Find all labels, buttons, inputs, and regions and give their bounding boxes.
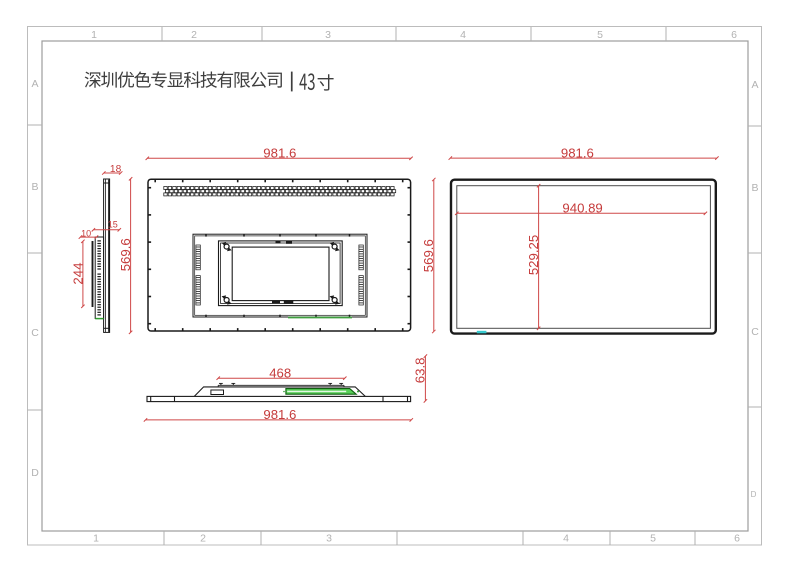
svg-text:3: 3 bbox=[325, 29, 331, 41]
svg-text:2: 2 bbox=[191, 29, 197, 41]
svg-text:5: 5 bbox=[650, 533, 656, 545]
svg-text:4: 4 bbox=[460, 29, 466, 41]
svg-text:468: 468 bbox=[269, 365, 291, 380]
svg-text:C: C bbox=[31, 327, 39, 339]
svg-text:D: D bbox=[31, 467, 39, 479]
svg-text:B: B bbox=[751, 182, 758, 194]
svg-text:569.6: 569.6 bbox=[421, 239, 436, 272]
svg-text:1: 1 bbox=[93, 533, 99, 545]
svg-text:18: 18 bbox=[110, 164, 122, 175]
svg-text:5: 5 bbox=[597, 29, 603, 41]
svg-text:981.6: 981.6 bbox=[263, 145, 296, 160]
svg-text:981.6: 981.6 bbox=[263, 407, 296, 422]
svg-text:244: 244 bbox=[70, 263, 85, 285]
svg-text:10: 10 bbox=[81, 229, 91, 239]
svg-text:D: D bbox=[751, 490, 757, 499]
svg-text:1: 1 bbox=[91, 29, 97, 41]
svg-text:B: B bbox=[31, 181, 38, 193]
svg-text:981.6: 981.6 bbox=[561, 145, 594, 160]
svg-text:3: 3 bbox=[326, 533, 332, 545]
svg-text:A: A bbox=[751, 79, 758, 91]
svg-text:6: 6 bbox=[731, 29, 737, 41]
svg-text:4: 4 bbox=[563, 533, 569, 545]
svg-text:569.6: 569.6 bbox=[118, 238, 133, 271]
svg-text:2: 2 bbox=[200, 533, 206, 545]
svg-text:529.25: 529.25 bbox=[526, 235, 541, 275]
svg-text:C: C bbox=[751, 326, 759, 338]
svg-text:A: A bbox=[31, 78, 38, 90]
svg-text:940.89: 940.89 bbox=[562, 201, 602, 216]
svg-text:15: 15 bbox=[108, 220, 118, 230]
svg-text:6: 6 bbox=[734, 533, 740, 545]
svg-text:63.8: 63.8 bbox=[413, 358, 428, 384]
